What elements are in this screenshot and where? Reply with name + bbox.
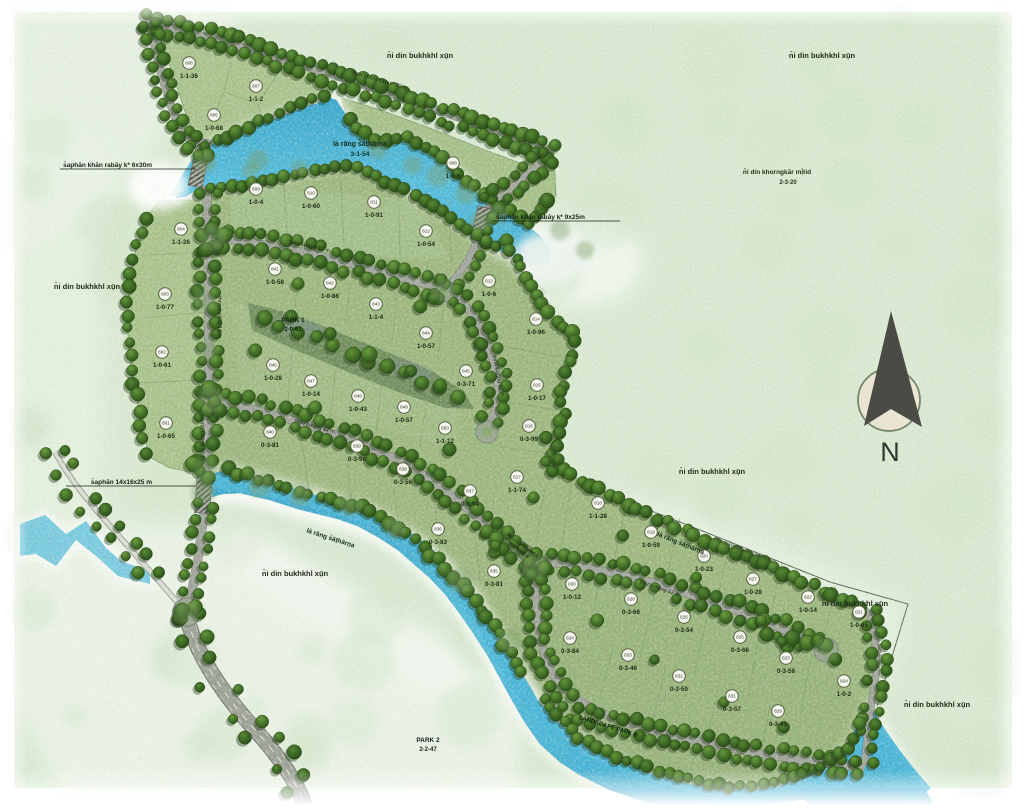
svg-text:0-3-57: 0-3-57 [723, 706, 741, 713]
svg-text:825: 825 [736, 635, 744, 640]
svg-text:844: 844 [422, 331, 430, 336]
svg-text:0-3-71: 0-3-71 [457, 381, 475, 388]
svg-text:1-0-59: 1-0-59 [642, 542, 660, 549]
svg-text:0-3-66: 0-3-66 [622, 609, 640, 616]
svg-text:1-0-96: 1-0-96 [527, 329, 545, 336]
svg-text:1-0-77: 1-0-77 [156, 304, 174, 311]
svg-text:n̄i din bukhkhl xụ̄n: n̄i din bukhkhl xụ̄n [54, 282, 121, 291]
svg-text:1-0-57: 1-0-57 [395, 417, 413, 424]
svg-text:824: 824 [840, 679, 848, 684]
svg-text:833: 833 [624, 653, 632, 658]
svg-text:839: 839 [353, 444, 361, 449]
svg-text:1-0-6: 1-0-6 [446, 173, 461, 180]
svg-text:1-1-74: 1-1-74 [508, 487, 526, 494]
svg-text:831: 831 [728, 694, 736, 699]
svg-text:802: 802 [158, 350, 166, 355]
svg-text:807: 807 [252, 84, 260, 89]
svg-text:837: 837 [466, 489, 474, 494]
svg-text:809: 809 [252, 187, 260, 192]
svg-text:0-3-99: 0-3-99 [520, 436, 538, 443]
svg-text:811: 811 [370, 200, 378, 205]
svg-text:819: 819 [647, 530, 655, 535]
svg-text:n̄i din bukhkhl xụ̄n: n̄i din bukhkhl xụ̄n [789, 51, 856, 60]
svg-text:2-2-47: 2-2-47 [419, 747, 437, 753]
svg-text:805: 805 [210, 113, 218, 118]
svg-text:0-3-56: 0-3-56 [394, 479, 412, 486]
svg-text:1-1-12: 1-1-12 [436, 438, 454, 445]
svg-text:827: 827 [749, 577, 757, 582]
svg-text:826: 826 [680, 615, 688, 620]
svg-text:0-3-59: 0-3-59 [777, 668, 795, 675]
svg-text:846: 846 [269, 363, 277, 368]
svg-text:0-3-41: 0-3-41 [769, 721, 787, 728]
svg-text:s̄aphān khān rabāy k* 6x30m: s̄aphān khān rabāy k* 6x30m [63, 160, 152, 169]
svg-text:838: 838 [399, 467, 407, 472]
svg-text:1-0-58: 1-0-58 [266, 279, 284, 286]
svg-text:842: 842 [326, 281, 334, 286]
svg-text:840: 840 [266, 430, 274, 435]
svg-text:843: 843 [372, 302, 380, 307]
svg-text:1-0-65: 1-0-65 [157, 433, 175, 440]
svg-text:0-3-46: 0-3-46 [619, 665, 637, 672]
svg-text:1-1-28: 1-1-28 [589, 513, 607, 520]
svg-text:848: 848 [354, 394, 362, 399]
svg-text:1-0-2: 1-0-2 [837, 691, 852, 698]
svg-text:810: 810 [307, 191, 315, 196]
svg-text:2-3-20: 2-3-20 [779, 180, 797, 186]
svg-text:s̄aphān khān rabāy k* 9x25m: s̄aphān khān rabāy k* 9x25m [496, 212, 585, 221]
svg-text:1-0-28: 1-0-28 [264, 375, 282, 382]
svg-text:847: 847 [307, 379, 315, 384]
svg-text:N: N [880, 437, 900, 467]
svg-text:0-3-94: 0-3-94 [461, 501, 479, 508]
svg-text:n̄i din khorngkār mị̀tid: n̄i din khorngkār mị̀tid [743, 167, 811, 176]
svg-text:850: 850 [441, 426, 449, 431]
svg-text:1-0-61: 1-0-61 [153, 362, 171, 369]
svg-text:814: 814 [532, 317, 540, 322]
svg-text:1-0-86: 1-0-86 [321, 293, 339, 300]
svg-text:801: 801 [162, 421, 170, 426]
svg-text:806: 806 [185, 61, 193, 66]
svg-text:813: 813 [485, 279, 493, 284]
svg-text:1-0-4: 1-0-4 [249, 199, 264, 206]
svg-text:0-3-81: 0-3-81 [485, 581, 503, 588]
svg-text:1-0-68: 1-0-68 [205, 125, 223, 132]
svg-text:1-0-60: 1-0-60 [302, 203, 320, 210]
svg-text:815: 815 [533, 383, 541, 388]
svg-text:835: 835 [490, 569, 498, 574]
svg-text:1-0-65: 1-0-65 [850, 622, 868, 629]
svg-text:836: 836 [434, 527, 442, 532]
svg-text:804: 804 [177, 227, 185, 232]
svg-text:841: 841 [271, 267, 279, 272]
svg-text:s̄aphān 14x16x25 m: s̄aphān 14x16x25 m [91, 477, 152, 486]
svg-text:0-3-50: 0-3-50 [670, 686, 688, 693]
svg-text:1-1-36: 1-1-36 [180, 73, 198, 80]
svg-text:n̄i din bukhkhl xụ̄n: n̄i din bukhkhl xụ̄n [822, 599, 889, 608]
svg-text:PARK 2: PARK 2 [416, 737, 440, 744]
svg-text:849: 849 [400, 405, 408, 410]
svg-text:0-3-81: 0-3-81 [261, 442, 279, 449]
svg-text:n̄i din bukhkhl xụ̄n: n̄i din bukhkhl xụ̄n [262, 569, 329, 578]
svg-text:812: 812 [422, 229, 430, 234]
svg-text:1-0-57: 1-0-57 [417, 343, 435, 350]
svg-text:830: 830 [568, 582, 576, 587]
svg-text:818: 818 [594, 501, 602, 506]
svg-text:n̄i din bukhkhl xụ̄n: n̄i din bukhkhl xụ̄n [679, 467, 746, 476]
svg-text:822: 822 [804, 595, 812, 600]
svg-text:845: 845 [462, 369, 470, 374]
svg-text:3-1-54: 3-1-54 [351, 151, 370, 158]
svg-text:1-0-43: 1-0-43 [349, 406, 367, 413]
svg-text:0-3-66: 0-3-66 [731, 647, 749, 654]
svg-text:832: 832 [675, 674, 683, 679]
svg-text:803: 803 [161, 292, 169, 297]
svg-text:816: 816 [525, 424, 533, 429]
svg-text:808: 808 [449, 161, 457, 166]
svg-text:1-0-14: 1-0-14 [302, 391, 320, 398]
svg-text:821: 821 [855, 610, 863, 615]
svg-text:1-1-4: 1-1-4 [369, 314, 384, 321]
svg-text:817: 817 [513, 475, 521, 480]
svg-text:823: 823 [782, 656, 790, 661]
svg-text:PARK 1: PARK 1 [281, 317, 305, 324]
svg-text:829: 829 [774, 709, 782, 714]
svg-text:0-3-84: 0-3-84 [561, 648, 579, 655]
svg-text:1-0-14: 1-0-14 [799, 607, 817, 614]
svg-text:thnn kwâng 16 m.: thnn kwâng 16 m. [216, 296, 222, 340]
svg-text:1-0-23: 1-0-23 [695, 566, 713, 573]
svg-text:1-0-17: 1-0-17 [528, 395, 546, 402]
svg-text:0-3-54: 0-3-54 [675, 627, 693, 634]
svg-text:1-0-6: 1-0-6 [482, 291, 497, 298]
svg-text:1-0-28: 1-0-28 [744, 589, 762, 596]
svg-text:1-0-54: 1-0-54 [417, 241, 435, 248]
svg-text:0-3-96: 0-3-96 [348, 456, 366, 463]
svg-text:lả rāng s̄āṭhārṇa: lả rāng s̄āṭhārṇa [333, 139, 387, 148]
svg-text:1-0-91: 1-0-91 [365, 212, 383, 219]
svg-text:1-1-26: 1-1-26 [172, 239, 190, 246]
svg-text:0-3-83: 0-3-83 [429, 539, 447, 546]
svg-text:n̄i din bukhkhl xụ̄n: n̄i din bukhkhl xụ̄n [387, 51, 454, 60]
svg-text:2-0-61: 2-0-61 [284, 327, 302, 333]
svg-text:834: 834 [566, 636, 574, 641]
svg-text:1-0-12: 1-0-12 [563, 594, 581, 601]
svg-text:828: 828 [627, 597, 635, 602]
svg-text:1-1-2: 1-1-2 [249, 96, 264, 103]
svg-text:n̄i din bukhkhl xụ̄n: n̄i din bukhkhl xụ̄n [904, 700, 971, 709]
